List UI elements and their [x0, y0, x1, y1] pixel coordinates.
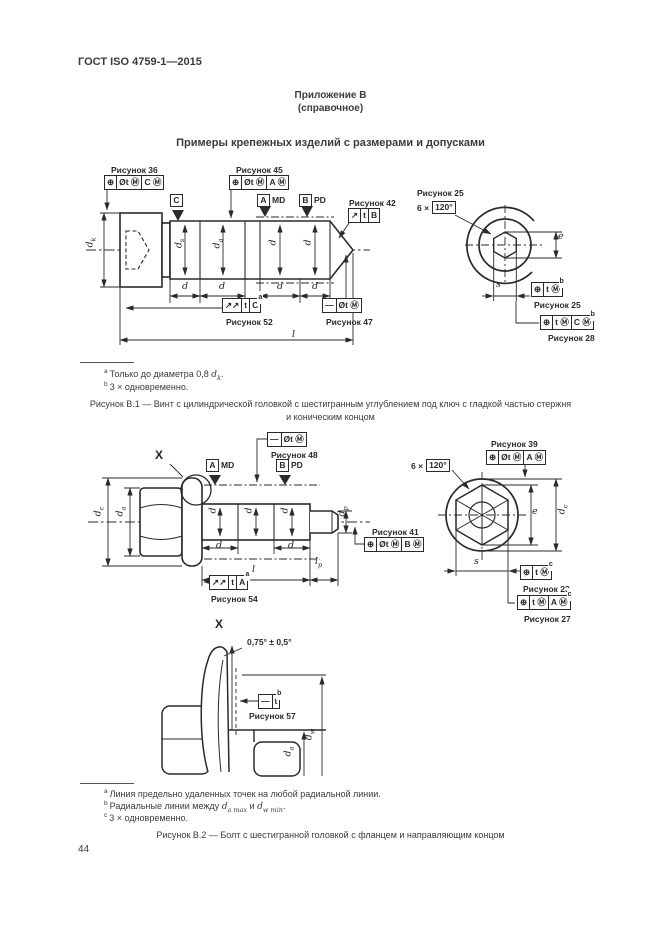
leader-fig41: [355, 527, 364, 544]
total-runout-symbol: ↗↗: [210, 576, 228, 589]
straightness-symbol: —: [323, 299, 336, 312]
fcf-fig27: c ⊕t ⓂA Ⓜ: [517, 595, 571, 610]
b1-shank: [170, 221, 353, 279]
fcf-fig28: b ⊕t ⓂC Ⓜ: [540, 315, 594, 330]
datum-pd-label: PD: [314, 195, 326, 205]
fig-label-54: Рисунок 54: [211, 594, 258, 604]
position-symbol: ⊕: [487, 451, 498, 464]
fig-label-41: Рисунок 41: [372, 527, 419, 537]
dim-d: d: [219, 281, 225, 292]
datum-triangle-c: [172, 210, 184, 221]
total-runout-symbol: ↗↗: [223, 299, 241, 312]
datum-md-label: MD: [272, 195, 285, 205]
fcf-fig54: a ↗↗tA: [209, 575, 248, 590]
dim-s: s: [496, 279, 501, 290]
datum-triangle-b: [279, 475, 291, 485]
appendix-note: (справочное): [0, 103, 661, 114]
fig-label-47: Рисунок 47: [326, 317, 373, 327]
doc-header: ГОСТ ISO 4759-1—2015: [78, 56, 202, 68]
dim-d: d: [277, 281, 283, 292]
leader-fig42: [339, 223, 349, 238]
dim-d: d: [216, 540, 222, 551]
dim-s: s: [474, 556, 479, 567]
dim-da: da: [283, 746, 296, 756]
document-page: ГОСТ ISO 4759-1—2015 Приложение В (справ…: [0, 0, 661, 935]
position-symbol: ⊕: [105, 176, 116, 189]
fcf-fig25: b ⊕t Ⓜ: [531, 282, 563, 297]
datum-box-b: B: [276, 459, 289, 472]
fig-label-28: Рисунок 28: [548, 333, 595, 343]
fcf-fig41: ⊕Øt ⓂB Ⓜ: [364, 537, 424, 552]
position-symbol: ⊕: [365, 538, 376, 551]
datum-triangle-a: [209, 475, 221, 485]
dim-dp: dp: [337, 506, 350, 516]
caption-b2: Рисунок В.2 — Болт с шестигранной головк…: [0, 830, 661, 840]
fcf-fig36: ⊕Øt ⓂC Ⓜ: [104, 175, 164, 190]
datum-md-label: MD: [221, 460, 234, 470]
footnote-b2-a: aЛиния предельно удаленных точек на любо…: [104, 788, 381, 799]
dim-d: d: [244, 507, 255, 513]
dim-dc: dc: [92, 507, 105, 517]
fcf-fig23: c ⊕t Ⓜ: [520, 565, 552, 580]
page-title: Примеры крепежных изделий с размерами и …: [0, 137, 661, 149]
position-symbol: ⊕: [518, 596, 529, 609]
socket-angle-callout: 6 ×120°: [417, 201, 456, 214]
runout-symbol: ↗: [349, 209, 360, 222]
fcf-fig48: —Øt Ⓜ: [267, 432, 307, 447]
detail-x-marker: X: [155, 448, 163, 462]
dim-d: d: [208, 507, 219, 513]
b2-pilot: [310, 511, 338, 533]
fcf-fig45: ⊕Øt ⓂA Ⓜ: [229, 175, 289, 190]
leader-angle-b1: [455, 215, 491, 234]
dim-d: d: [268, 239, 279, 245]
datum-box-b: B: [299, 194, 312, 207]
caption-b1-line1: Рисунок В.1 — Винт с цилиндрической голо…: [0, 399, 661, 409]
datum-box-a: A: [206, 459, 219, 472]
dim-d: d: [312, 281, 318, 292]
dim-d: d: [303, 239, 314, 245]
dim-e: e: [558, 231, 564, 242]
dim-dk: dk: [85, 237, 98, 247]
fig-label-57: Рисунок 57: [249, 711, 296, 721]
dim-da: da: [115, 506, 128, 516]
position-symbol: ⊕: [532, 283, 543, 296]
footnote-rule-b2: [80, 783, 134, 784]
x-flange-lip: [201, 647, 229, 772]
dim-d: d: [182, 281, 188, 292]
fcf-fig47: —Øt Ⓜ: [322, 298, 362, 313]
datum-box-c: C: [170, 194, 183, 207]
appendix-title: Приложение В: [0, 90, 661, 101]
fig-label-36: Рисунок 36: [111, 165, 158, 175]
datum-triangle-a: [259, 206, 271, 217]
datum-pd-label: PD: [291, 460, 303, 470]
straightness-symbol: —: [259, 695, 272, 708]
fcf-fig42: ↗tB: [348, 208, 380, 223]
fcf-fig39: ⊕Øt ⓂA Ⓜ: [486, 450, 546, 465]
straightness-symbol: —: [268, 433, 281, 446]
dim-e: e: [532, 506, 538, 517]
fig-label-42: Рисунок 42: [349, 198, 396, 208]
fcf-fig52: a ↗↗tC: [222, 298, 261, 313]
dim-da: da: [212, 238, 225, 248]
dim-lp: lp: [315, 556, 322, 569]
fig-label-39: Рисунок 39: [491, 439, 538, 449]
fig-label-27: Рисунок 27: [524, 614, 571, 624]
b1-collar: [162, 223, 170, 277]
fig-label-23: Рисунок 23: [523, 584, 570, 594]
b2-flange: [182, 478, 202, 566]
angle-value-box: 120°: [426, 459, 450, 472]
dim-l: l: [252, 564, 255, 575]
dim-dw: dw: [303, 729, 316, 741]
dim-dc: dc: [556, 505, 569, 515]
position-symbol: ⊕: [521, 566, 532, 579]
fig-label-45: Рисунок 45: [236, 165, 283, 175]
footnote-b1-b: b3 × одновременно.: [104, 381, 188, 392]
fig-label-52: Рисунок 52: [226, 317, 273, 327]
page-number: 44: [78, 844, 89, 855]
position-symbol: ⊕: [230, 176, 241, 189]
dim-d: d: [280, 507, 291, 513]
leader-fig48: [257, 439, 267, 482]
fcf-fig57: b —t: [258, 694, 280, 709]
detail-x-angle: 0,75° ± 0,5°: [247, 637, 292, 647]
hex-angle-callout: 6 ×120°: [411, 459, 450, 472]
datum-box-a: A: [257, 194, 270, 207]
dim-l: l: [292, 329, 295, 340]
fig-label-25: Рисунок 25: [534, 300, 581, 310]
fig-label-25-angle: Рисунок 25: [417, 188, 464, 198]
dim-d: d: [288, 540, 294, 551]
footnote-rule-b1: [80, 362, 134, 363]
position-symbol: ⊕: [541, 316, 552, 329]
detail-x-title: X: [215, 617, 223, 631]
dim-ds: ds: [173, 239, 186, 248]
b2-hexhead: [140, 488, 182, 556]
footnote-b1-a: aТолько до диаметра 0,8 dk.: [104, 368, 224, 382]
datum-triangle-b: [301, 206, 313, 217]
angle-value-box: 120°: [432, 201, 456, 214]
caption-b1-line2: и коническим концом: [0, 412, 661, 422]
footnote-b2-c: c3 × одновременно.: [104, 812, 188, 823]
